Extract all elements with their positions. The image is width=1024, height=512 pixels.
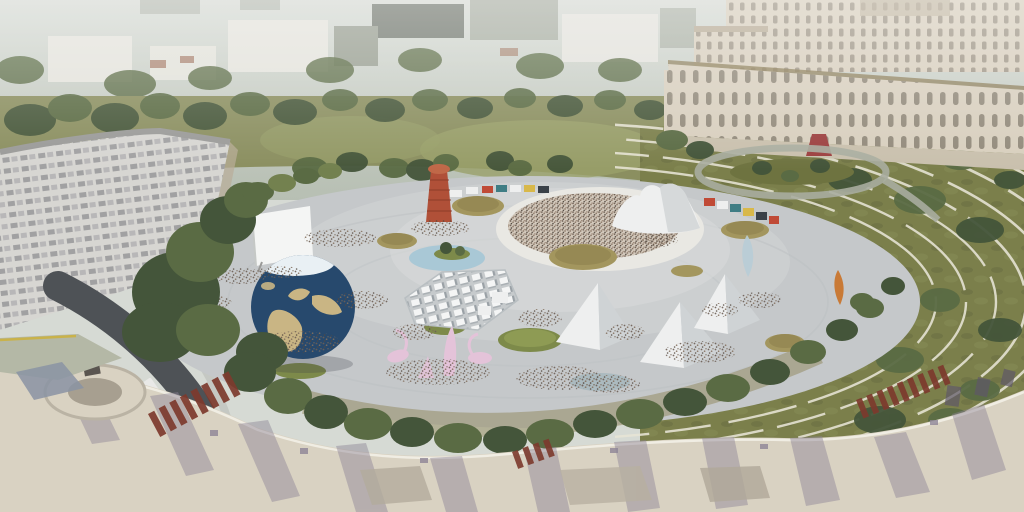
kiosk-box (492, 292, 508, 303)
scene-svg: Aerial rendering of a large circular fes… (0, 0, 1024, 512)
haze-overlay (0, 0, 1024, 170)
aerial-render: Aerial rendering of a large circular fes… (0, 0, 1024, 512)
kiosk-box (478, 306, 491, 315)
